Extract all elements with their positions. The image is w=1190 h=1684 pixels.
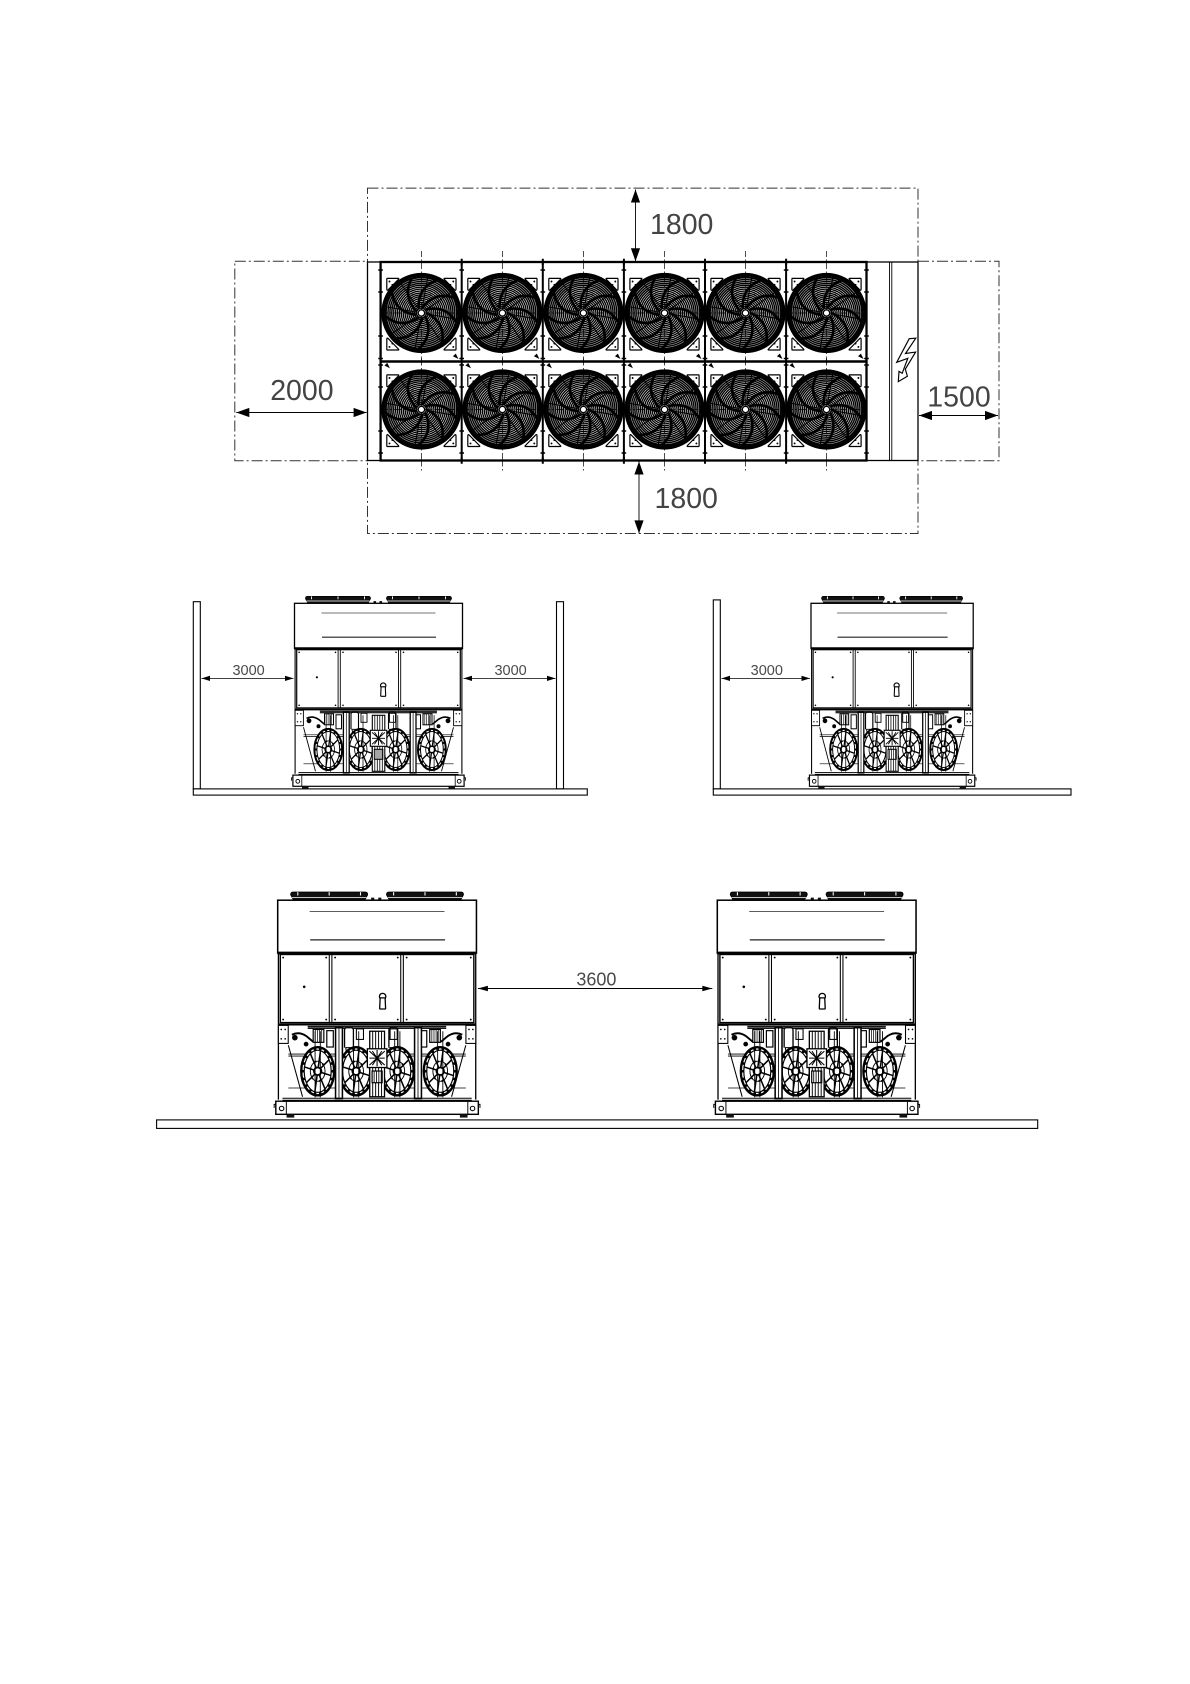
svg-text:3600: 3600	[576, 969, 616, 989]
svg-text:3000: 3000	[494, 663, 526, 679]
svg-text:3000: 3000	[232, 663, 264, 679]
svg-text:1800: 1800	[655, 483, 718, 515]
svg-text:2000: 2000	[270, 375, 333, 407]
svg-text:3000: 3000	[751, 663, 783, 679]
svg-text:1500: 1500	[927, 382, 990, 414]
svg-text:1800: 1800	[650, 209, 713, 241]
